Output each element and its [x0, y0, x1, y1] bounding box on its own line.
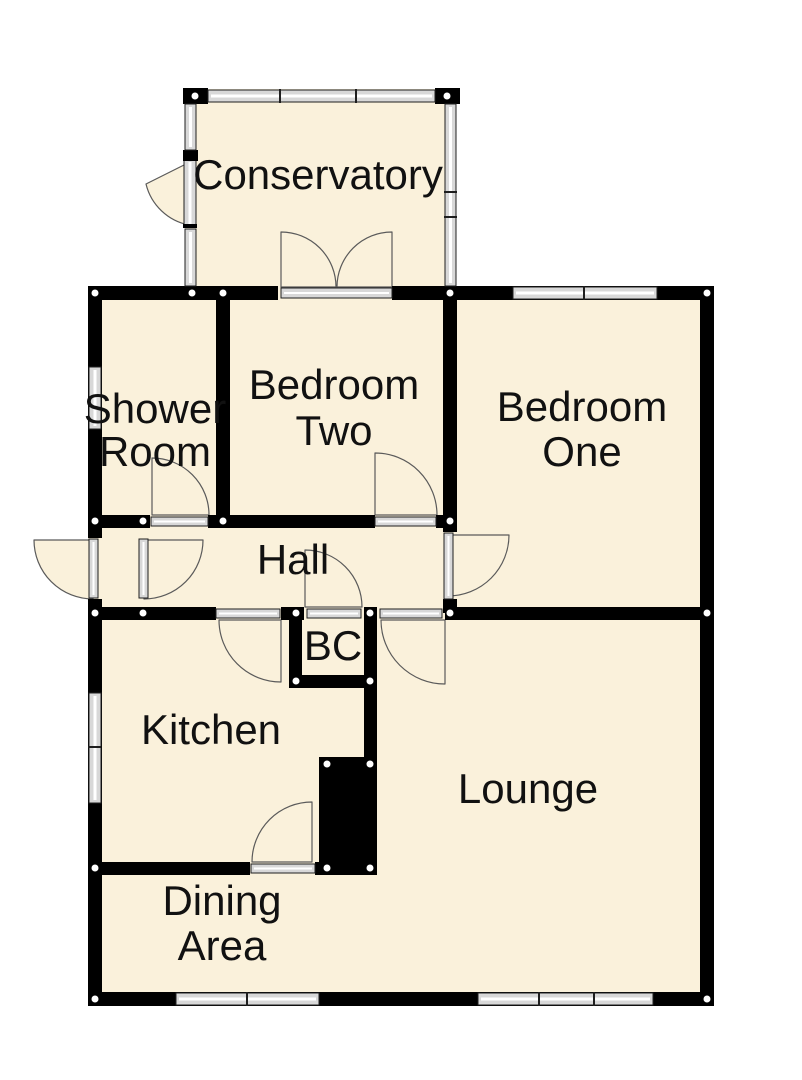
wall-node — [220, 518, 227, 525]
wall-node — [444, 93, 451, 100]
wall-node — [293, 678, 300, 685]
room-label-lounge: Lounge — [458, 768, 598, 810]
vestibule-door-leaf — [139, 539, 148, 598]
conservatory-window-right — [444, 104, 457, 286]
wall-kitchen-bottom-stub — [315, 862, 321, 875]
wall-kitchen-bottom — [88, 862, 250, 875]
kitchen-window — [88, 693, 101, 803]
conservatory-window-left-lower — [185, 229, 196, 286]
wall-node — [192, 93, 199, 100]
bedroom-two-door-sill — [375, 517, 436, 526]
bc-door-sill — [307, 609, 361, 618]
room-label-shower-room-line2: Room — [99, 431, 211, 473]
chimney-block — [319, 757, 377, 875]
wall-node — [293, 610, 300, 617]
wall-node — [92, 290, 99, 297]
room-label-conservatory: Conservatory — [193, 154, 443, 196]
wall-node — [220, 290, 227, 297]
wall-right — [700, 286, 714, 1006]
wall-hall-top-b — [208, 515, 375, 528]
room-label-hall: Hall — [257, 539, 329, 581]
wall-node — [324, 761, 331, 768]
wall-hall-bottom-a — [88, 607, 216, 620]
floor-plan: Conservatory Shower Room Bedroom Two Bed… — [0, 0, 802, 1080]
room-label-dining-area-line1: Dining — [162, 880, 281, 922]
wall-node — [189, 290, 196, 297]
dining-door-sill — [251, 864, 315, 873]
lounge-door-sill — [380, 609, 442, 618]
dining-area-window — [176, 992, 319, 1006]
room-label-kitchen: Kitchen — [141, 709, 281, 751]
lounge-window — [478, 992, 653, 1006]
room-label-bedroom-one-line2: One — [542, 431, 621, 473]
wall-node — [447, 518, 454, 525]
wall-node — [367, 761, 374, 768]
wall-node — [140, 518, 147, 525]
wall-top-left — [88, 286, 278, 300]
wall-node — [367, 610, 374, 617]
wall-node — [92, 865, 99, 872]
wall-node — [704, 610, 711, 617]
wall-node — [92, 996, 99, 1003]
wall-node — [140, 610, 147, 617]
wall-node — [447, 290, 454, 297]
room-label-bedroom-one-line1: Bedroom — [497, 386, 667, 428]
room-label-bedroom-two-line2: Two — [295, 410, 372, 452]
wall-node — [704, 996, 711, 1003]
shower-room-door-sill — [151, 517, 208, 526]
wall-bedroom-divider-upper — [443, 300, 457, 516]
room-label-bedroom-two-line1: Bedroom — [249, 364, 419, 406]
wall-node — [92, 610, 99, 617]
wall-node — [92, 518, 99, 525]
conservatory-window-left-upper — [185, 104, 196, 150]
wall-node — [367, 865, 374, 872]
front-door-leaf — [89, 539, 98, 598]
wall-bc-bottom — [289, 675, 377, 688]
wall-node — [324, 865, 331, 872]
wall-node — [367, 678, 374, 685]
room-label-dining-area-line2: Area — [178, 925, 267, 967]
wall-node — [704, 290, 711, 297]
wall-lounge-top — [445, 607, 714, 620]
french-door-sill — [281, 288, 392, 298]
room-label-shower-room-line1: Shower — [84, 388, 226, 430]
wall-node — [447, 610, 454, 617]
front-door-arc-icon — [34, 540, 93, 599]
room-label-bc: BC — [304, 625, 362, 667]
bedroom-one-window — [513, 286, 657, 300]
bedroom-one-door-leaf — [444, 533, 453, 599]
kitchen-door-sill — [216, 609, 280, 618]
conservatory-window-top — [208, 89, 435, 103]
